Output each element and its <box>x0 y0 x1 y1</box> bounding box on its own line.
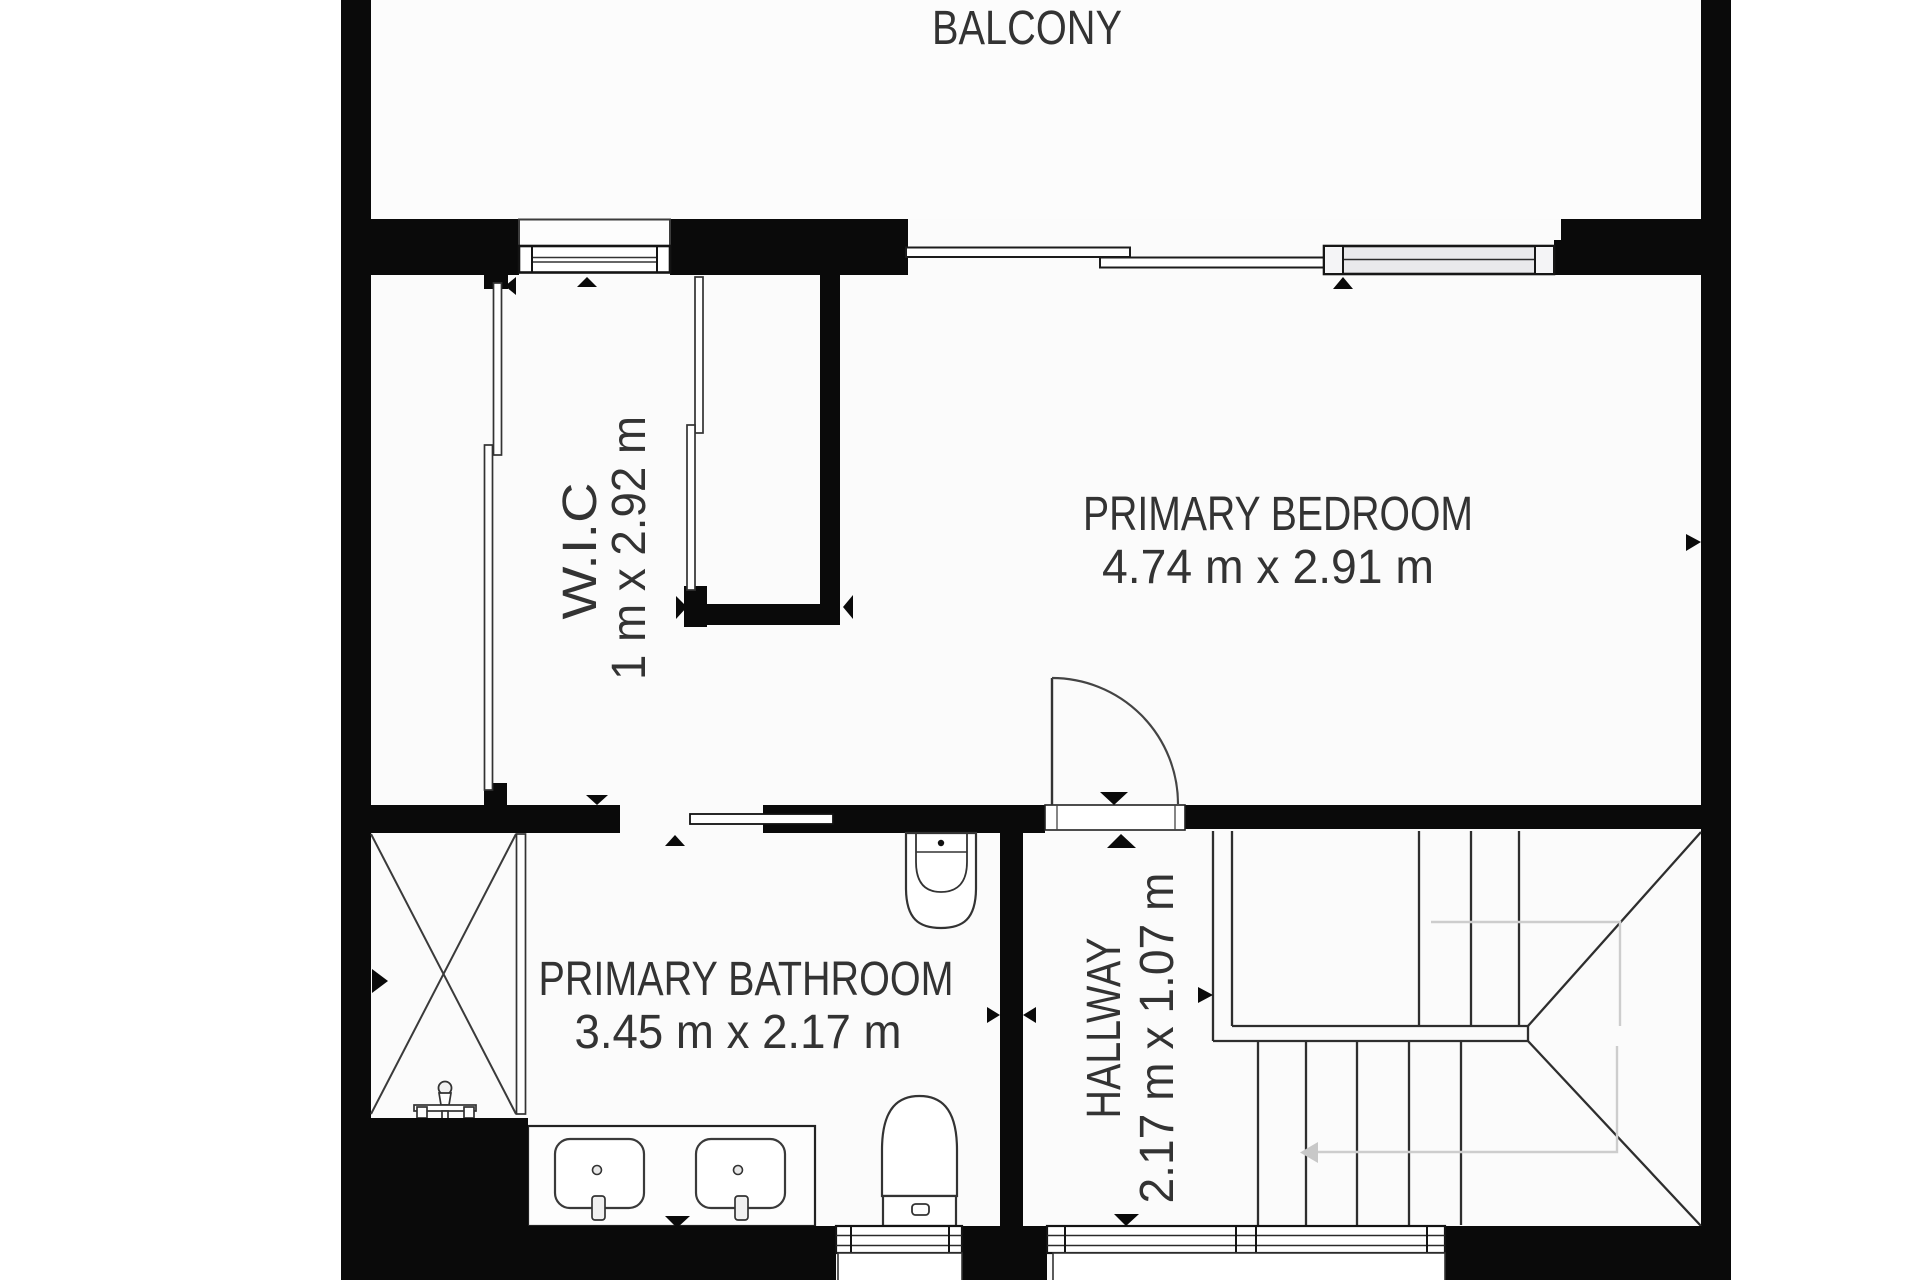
svg-text:3.45 m x 2.17 m: 3.45 m x 2.17 m <box>575 1006 902 1059</box>
svg-text:2.17 m x 1.07 m: 2.17 m x 1.07 m <box>1131 873 1184 1204</box>
svg-text:HALLWAY: HALLWAY <box>1078 938 1131 1119</box>
svg-text:1 m x 2.92 m: 1 m x 2.92 m <box>603 416 656 680</box>
svg-text:PRIMARY BATHROOM: PRIMARY BATHROOM <box>539 953 954 1006</box>
svg-text:W.I.C: W.I.C <box>554 483 607 620</box>
svg-text:4.74 m x 2.91 m: 4.74 m x 2.91 m <box>1102 541 1434 594</box>
svg-text:PRIMARY BEDROOM: PRIMARY BEDROOM <box>1083 488 1473 541</box>
svg-text:BALCONY: BALCONY <box>932 2 1122 55</box>
